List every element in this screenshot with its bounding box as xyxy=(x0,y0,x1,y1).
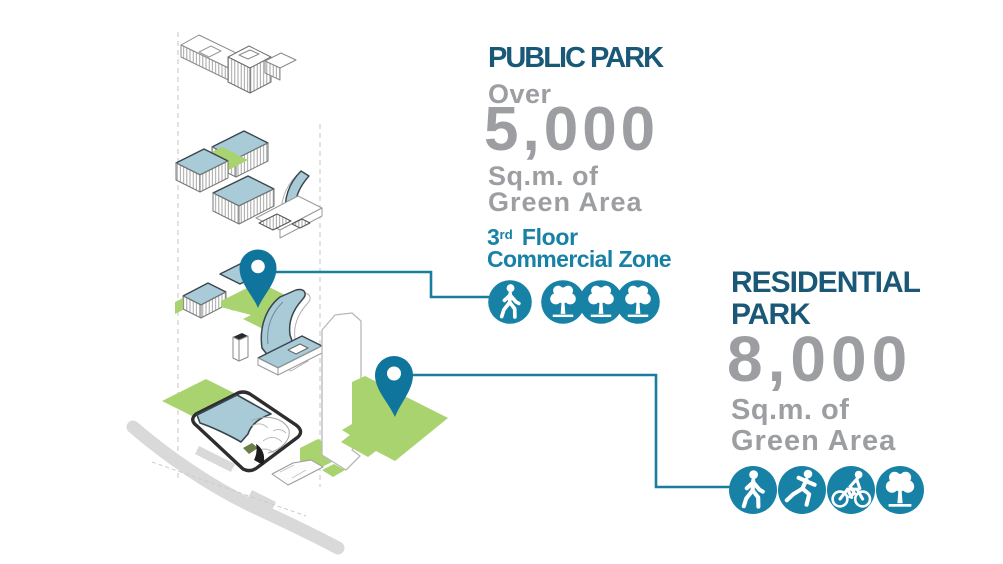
upper-floor-level xyxy=(176,131,322,238)
tree-icon xyxy=(541,280,585,324)
runner-icon xyxy=(778,466,826,514)
residential-park-icons xyxy=(729,466,924,514)
tree-icon xyxy=(876,466,924,514)
public-park-area-label: Green Area xyxy=(488,189,643,216)
residential-park-area-unit: Sq.m. of xyxy=(731,396,849,425)
cyclist-icon xyxy=(827,466,875,514)
public-park-area-unit: Sq.m. of xyxy=(488,163,599,190)
residential-park-connector xyxy=(408,375,730,487)
tree-icon xyxy=(616,280,660,324)
rooftop-level xyxy=(181,35,296,93)
residential-park-title: RESIDENTIAL PARK xyxy=(731,267,920,331)
public-park-zone-label: Commercial Zone xyxy=(487,248,671,271)
public-park-icons xyxy=(488,280,660,324)
public-park-title: PUBLIC PARK xyxy=(488,44,662,73)
floor-ordinal: rd xyxy=(500,227,513,242)
pedestrian-icon xyxy=(488,280,532,324)
pedestrian-icon xyxy=(729,466,777,514)
residential-title-line1: RESIDENTIAL xyxy=(731,267,920,299)
residential-park-area-value: 8,000 xyxy=(727,327,912,391)
public-park-area-value: 5,000 xyxy=(484,99,659,161)
infographic-slide: PUBLIC PARK Over 5,000 Sq.m. of Green Ar… xyxy=(0,0,1003,564)
residential-park-area-label: Green Area xyxy=(731,427,896,456)
